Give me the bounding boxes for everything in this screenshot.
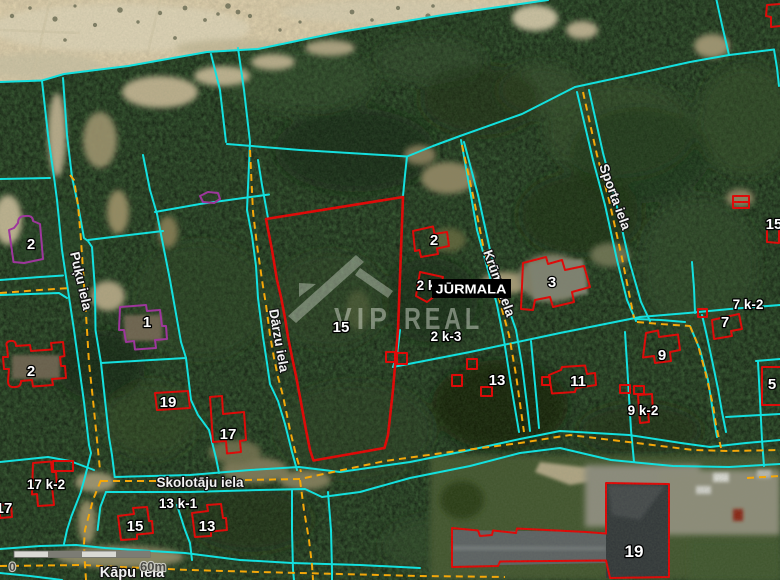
svg-text:13: 13 (199, 518, 216, 535)
svg-text:7 k-2: 7 k-2 (733, 297, 764, 312)
svg-text:Skolotāju iela: Skolotāju iela (156, 475, 244, 490)
svg-text:2 k-3: 2 k-3 (431, 329, 462, 344)
svg-text:9: 9 (658, 347, 666, 364)
svg-text:17 k-2: 17 k-2 (27, 477, 65, 492)
svg-text:2: 2 (27, 236, 35, 253)
svg-text:13 k-1: 13 k-1 (159, 496, 198, 511)
svg-text:15: 15 (127, 518, 144, 535)
svg-text:13: 13 (489, 372, 506, 389)
svg-text:1: 1 (143, 314, 151, 331)
svg-text:JŪRMALA: JŪRMALA (436, 282, 508, 297)
svg-text:19: 19 (160, 394, 177, 411)
svg-text:17: 17 (0, 500, 12, 517)
svg-text:15: 15 (333, 319, 350, 336)
svg-text:0: 0 (9, 560, 16, 574)
svg-text:7: 7 (721, 314, 729, 331)
svg-text:3: 3 (548, 274, 556, 291)
svg-text:2: 2 (27, 363, 35, 380)
svg-text:9 k-2: 9 k-2 (628, 403, 659, 418)
svg-text:60m: 60m (140, 559, 166, 574)
svg-text:15: 15 (766, 216, 780, 233)
svg-text:17: 17 (220, 426, 237, 443)
svg-text:5: 5 (768, 376, 776, 393)
svg-text:11: 11 (570, 373, 586, 390)
svg-text:19: 19 (625, 542, 644, 561)
svg-text:2: 2 (430, 232, 438, 249)
